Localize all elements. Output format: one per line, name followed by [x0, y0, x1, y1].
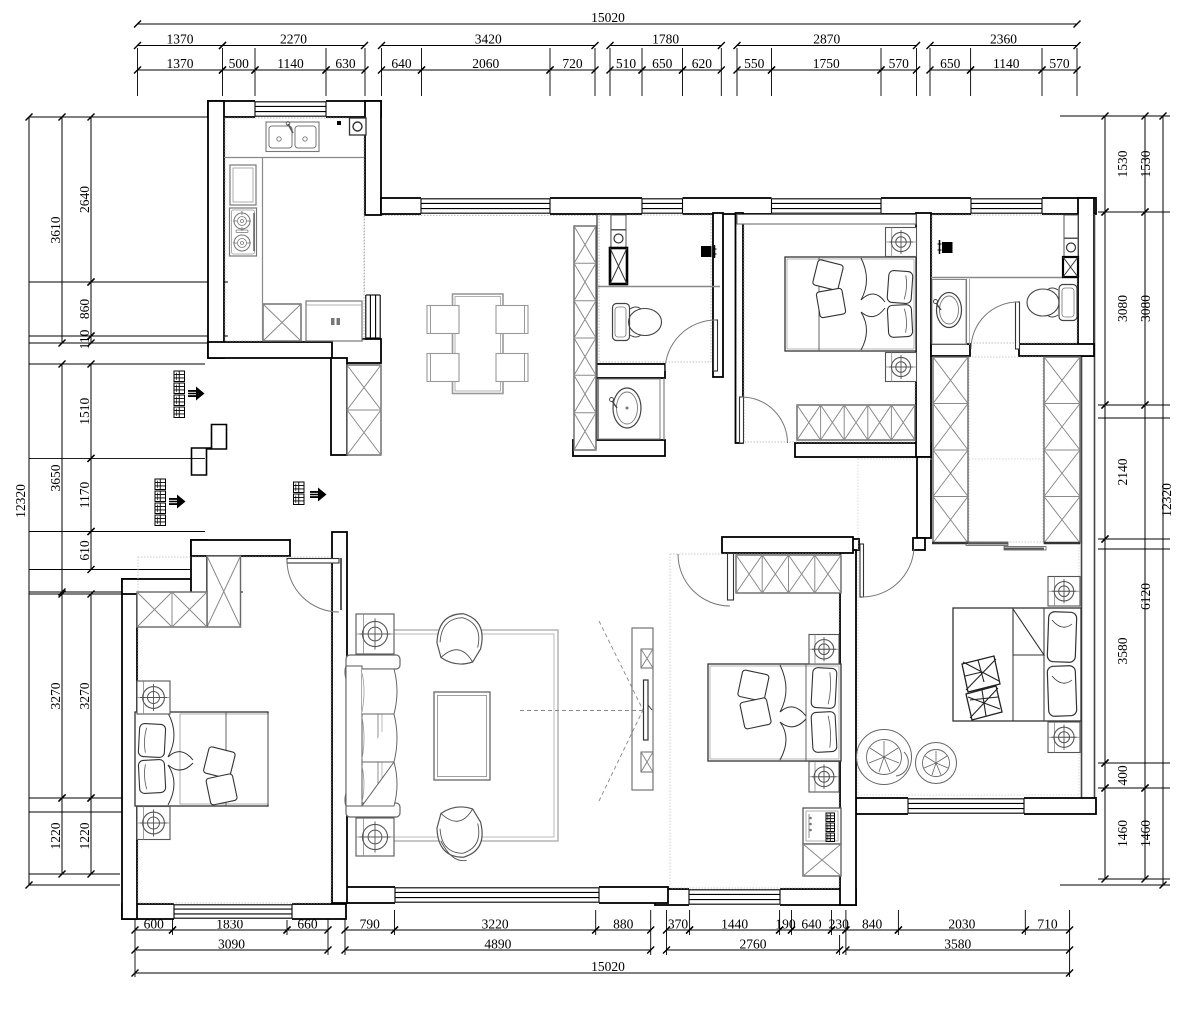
svg-text:650: 650: [652, 56, 673, 71]
svg-text:2640: 2640: [77, 186, 92, 213]
svg-text:15020: 15020: [591, 959, 625, 974]
svg-text:710: 710: [1037, 917, 1058, 932]
svg-text:720: 720: [562, 56, 583, 71]
svg-text:860: 860: [77, 299, 92, 320]
svg-text:790: 790: [360, 917, 381, 932]
svg-text:110: 110: [77, 329, 92, 349]
svg-text:880: 880: [613, 917, 634, 932]
svg-text:1140: 1140: [277, 56, 304, 71]
svg-text:500: 500: [229, 56, 250, 71]
svg-text:1170: 1170: [77, 481, 92, 508]
svg-text:2270: 2270: [280, 32, 307, 47]
svg-text:6120: 6120: [1138, 583, 1153, 610]
svg-text:570: 570: [889, 56, 910, 71]
svg-text:610: 610: [77, 540, 92, 561]
svg-text:840: 840: [862, 917, 883, 932]
svg-text:3220: 3220: [482, 917, 509, 932]
svg-text:2760: 2760: [740, 937, 767, 952]
svg-text:1750: 1750: [813, 56, 840, 71]
svg-text:3420: 3420: [475, 32, 502, 47]
svg-text:1530: 1530: [1138, 150, 1153, 177]
svg-text:550: 550: [744, 56, 765, 71]
svg-text:1780: 1780: [652, 32, 679, 47]
svg-text:1510: 1510: [77, 397, 92, 424]
svg-text:2140: 2140: [1115, 458, 1130, 485]
svg-text:630: 630: [335, 56, 356, 71]
svg-text:510: 510: [616, 56, 637, 71]
svg-text:3610: 3610: [48, 216, 63, 243]
svg-text:2360: 2360: [990, 32, 1017, 47]
svg-text:640: 640: [391, 56, 412, 71]
svg-text:1220: 1220: [48, 822, 63, 849]
svg-text:4890: 4890: [484, 937, 511, 952]
svg-text:1370: 1370: [167, 56, 194, 71]
svg-text:1460: 1460: [1138, 820, 1153, 847]
svg-text:3080: 3080: [1138, 295, 1153, 322]
svg-text:12320: 12320: [1159, 483, 1174, 517]
svg-text:2060: 2060: [472, 56, 499, 71]
svg-text:1440: 1440: [721, 917, 748, 932]
svg-text:620: 620: [692, 56, 713, 71]
svg-text:640: 640: [801, 917, 822, 932]
svg-text:1140: 1140: [993, 56, 1020, 71]
svg-text:12320: 12320: [13, 484, 28, 518]
svg-text:1220: 1220: [77, 822, 92, 849]
svg-text:1370: 1370: [167, 32, 194, 47]
svg-text:570: 570: [1049, 56, 1070, 71]
svg-text:3270: 3270: [48, 682, 63, 709]
svg-text:1530: 1530: [1115, 150, 1130, 177]
svg-text:15020: 15020: [591, 10, 625, 25]
svg-text:400: 400: [1115, 765, 1130, 786]
svg-text:370: 370: [668, 917, 689, 932]
svg-text:2870: 2870: [813, 32, 840, 47]
svg-text:1460: 1460: [1115, 820, 1130, 847]
svg-text:3650: 3650: [48, 464, 63, 491]
svg-text:3580: 3580: [944, 937, 971, 952]
svg-text:2030: 2030: [948, 917, 975, 932]
svg-text:3090: 3090: [218, 937, 245, 952]
svg-text:3080: 3080: [1115, 295, 1130, 322]
svg-text:3270: 3270: [77, 682, 92, 709]
svg-text:3580: 3580: [1115, 637, 1130, 664]
svg-text:650: 650: [940, 56, 961, 71]
